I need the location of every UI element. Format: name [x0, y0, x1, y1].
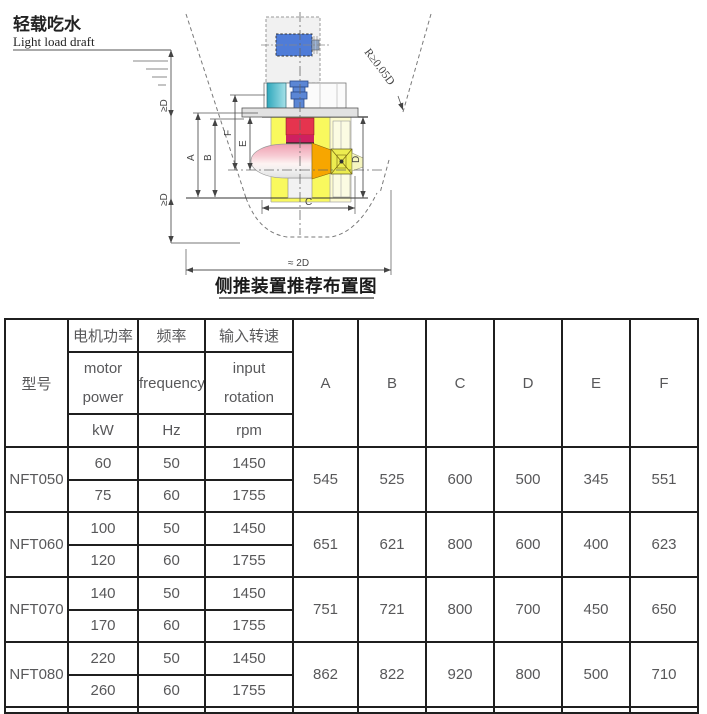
- cell-dim-d: 800: [494, 642, 562, 707]
- cell-model: NFT050: [5, 447, 68, 512]
- table-row: NFT050 60 50 1450 545 525 600 500 345 55…: [5, 447, 698, 480]
- dim-d-label: D: [351, 156, 362, 163]
- dim-2d-label: ≈ 2D: [288, 258, 309, 269]
- waterline-label-en: Light load draft: [13, 34, 95, 49]
- cell-dim-b: 822: [358, 642, 426, 707]
- cell-empty: [630, 707, 698, 713]
- cell-rotation: 1755: [205, 480, 293, 513]
- cell-power: 140: [68, 577, 138, 610]
- radius-note-label: R≥0.05D: [362, 47, 397, 88]
- cell-empty: [293, 707, 358, 713]
- cell-rotation: 1450: [205, 512, 293, 545]
- cell-empty: [426, 707, 494, 713]
- cell-dim-c: 920: [426, 642, 494, 707]
- cell-dim-a: 751: [293, 577, 358, 642]
- dim-b-label: B: [203, 154, 214, 161]
- header-frequency-en: frequency: [138, 352, 205, 414]
- cell-model: NFT080: [5, 642, 68, 707]
- page: { "diagram": { "waterline_zh": "轻载吃水", "…: [0, 0, 707, 714]
- cell-empty: [494, 707, 562, 713]
- header-power-zh: 电机功率: [68, 319, 138, 352]
- header-frequency-zh: 频率: [138, 319, 205, 352]
- waterline-label-zh: 轻载吃水: [13, 14, 82, 34]
- dim-c-label: C: [305, 197, 312, 208]
- header-dim-a: A: [293, 319, 358, 447]
- diagram-svg: 轻载吃水 Light load draft ≥D ≥D: [0, 0, 707, 312]
- cell-power: 60: [68, 447, 138, 480]
- table-row: NFT070 140 50 1450 751 721 800 700 450 6…: [5, 577, 698, 610]
- header-dim-d: D: [494, 319, 562, 447]
- ge-d-lower-label: ≥D: [159, 193, 170, 206]
- header-dim-b: B: [358, 319, 426, 447]
- cell-dim-e: 500: [562, 642, 630, 707]
- cell-dim-e: 345: [562, 447, 630, 512]
- cell-rotation: 1755: [205, 675, 293, 708]
- cell-dim-a: 862: [293, 642, 358, 707]
- cell-dim-d: 700: [494, 577, 562, 642]
- cell-frequency: 50: [138, 577, 205, 610]
- coupling-assembly: [264, 81, 346, 108]
- cell-dim-d: 500: [494, 447, 562, 512]
- waterline: [13, 50, 171, 85]
- submergence-dimension: [171, 50, 240, 243]
- pod-body: [251, 144, 312, 178]
- cell-rotation: 1450: [205, 642, 293, 675]
- cell-frequency: 50: [138, 642, 205, 675]
- thruster-arrangement-diagram: 轻载吃水 Light load draft ≥D ≥D: [0, 0, 707, 312]
- ge-d-upper-label: ≥D: [159, 99, 170, 112]
- header-model: 型号: [5, 319, 68, 447]
- cell-rotation: 1755: [205, 610, 293, 643]
- cell-power: 170: [68, 610, 138, 643]
- cell-rotation: 1755: [205, 545, 293, 578]
- cell-rotation: 1450: [205, 577, 293, 610]
- cell-dim-f: 551: [630, 447, 698, 512]
- header-rotation-en-line1: input: [206, 354, 292, 383]
- cell-dim-c: 800: [426, 577, 494, 642]
- coupling-cyan-block: [267, 83, 286, 108]
- cell-frequency: 60: [138, 675, 205, 708]
- dim-f-label: F: [223, 130, 234, 136]
- header-frequency-unit: Hz: [138, 414, 205, 447]
- cell-dim-a: 545: [293, 447, 358, 512]
- header-rotation-unit: rpm: [205, 414, 293, 447]
- cell-empty: [138, 707, 205, 713]
- cell-dim-b: 721: [358, 577, 426, 642]
- cell-frequency: 50: [138, 447, 205, 480]
- header-power-en-line2: power: [69, 383, 137, 412]
- cell-power: 260: [68, 675, 138, 708]
- cell-dim-f: 710: [630, 642, 698, 707]
- cell-dim-b: 525: [358, 447, 426, 512]
- dim-a-label: A: [186, 154, 197, 161]
- spec-table: 型号 电机功率 频率 输入转速 A B C D E F motor power …: [4, 318, 699, 714]
- cell-dim-e: 400: [562, 512, 630, 577]
- header-rotation-zh: 输入转速: [205, 319, 293, 352]
- cell-dim-f: 623: [630, 512, 698, 577]
- header-rotation-en-line2: rotation: [206, 383, 292, 412]
- header-power-en-line1: motor: [69, 354, 137, 383]
- cell-dim-c: 800: [426, 512, 494, 577]
- header-dim-c: C: [426, 319, 494, 447]
- cell-power: 220: [68, 642, 138, 675]
- cell-dim-f: 650: [630, 577, 698, 642]
- diagram-caption: 侧推装置推荐布置图: [215, 276, 377, 296]
- cell-empty: [205, 707, 293, 713]
- cell-frequency: 60: [138, 480, 205, 513]
- spec-table-container: 型号 电机功率 频率 输入转速 A B C D E F motor power …: [4, 318, 699, 714]
- cell-dim-a: 651: [293, 512, 358, 577]
- table-row-partial: [5, 707, 698, 713]
- cell-power: 100: [68, 512, 138, 545]
- cell-power: 75: [68, 480, 138, 513]
- header-dim-f: F: [630, 319, 698, 447]
- cell-dim-c: 600: [426, 447, 494, 512]
- cell-empty: [358, 707, 426, 713]
- cell-empty: [5, 707, 68, 713]
- cell-empty: [68, 707, 138, 713]
- header-power-en: motor power: [68, 352, 138, 414]
- cell-empty: [562, 707, 630, 713]
- header-power-unit: kW: [68, 414, 138, 447]
- cell-model: NFT070: [5, 577, 68, 642]
- cell-dim-b: 621: [358, 512, 426, 577]
- cell-frequency: 60: [138, 610, 205, 643]
- cell-rotation: 1450: [205, 447, 293, 480]
- cell-frequency: 50: [138, 512, 205, 545]
- cell-dim-e: 450: [562, 577, 630, 642]
- header-dim-e: E: [562, 319, 630, 447]
- table-row: NFT060 100 50 1450 651 621 800 600 400 6…: [5, 512, 698, 545]
- table-row: NFT080 220 50 1450 862 822 920 800 500 7…: [5, 642, 698, 675]
- cell-dim-d: 600: [494, 512, 562, 577]
- cell-power: 120: [68, 545, 138, 578]
- dim-e-label: E: [238, 140, 249, 147]
- header-rotation-en: input rotation: [205, 352, 293, 414]
- cell-frequency: 60: [138, 545, 205, 578]
- radius-leader: [398, 96, 403, 110]
- cell-model: NFT060: [5, 512, 68, 577]
